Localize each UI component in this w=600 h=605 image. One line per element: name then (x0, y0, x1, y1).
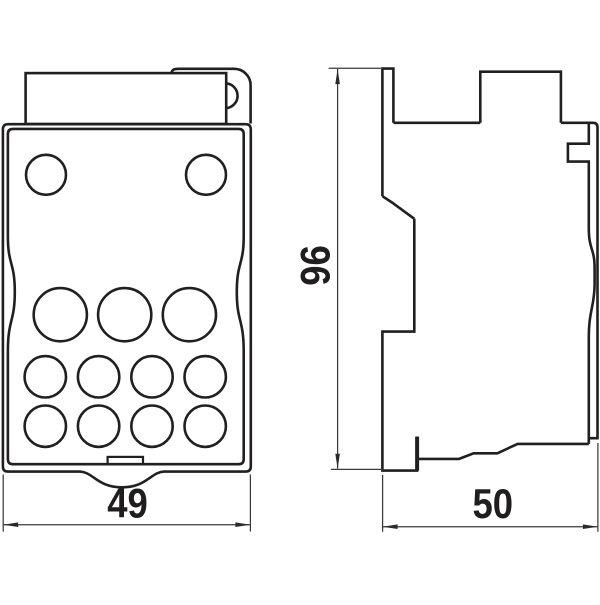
svg-text:50: 50 (472, 482, 513, 528)
svg-text:96: 96 (291, 245, 337, 286)
svg-text:49: 49 (107, 481, 148, 527)
